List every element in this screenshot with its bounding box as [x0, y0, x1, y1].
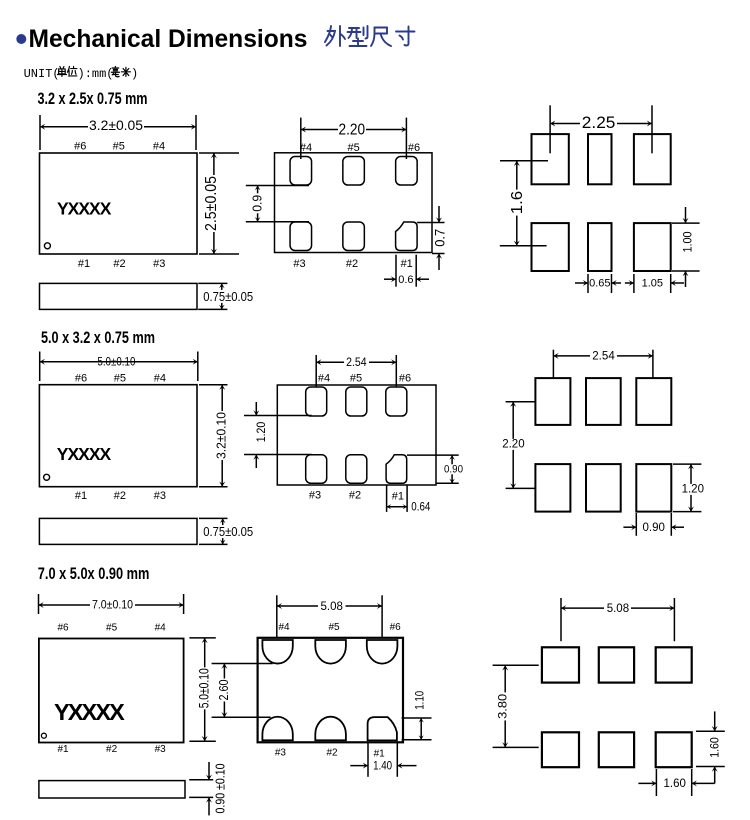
- svg-text:0.9: 0.9: [250, 195, 264, 212]
- svg-text:#4: #4: [318, 373, 330, 385]
- svg-text:1.6: 1.6: [509, 191, 526, 214]
- svg-text:0.64: 0.64: [411, 500, 430, 514]
- svg-text:#3: #3: [275, 748, 287, 759]
- svg-text:UNIT(: UNIT(: [24, 67, 60, 81]
- svg-text:#1: #1: [392, 490, 404, 502]
- svg-text:1.60: 1.60: [664, 778, 686, 790]
- svg-text:5.08: 5.08: [321, 601, 343, 613]
- svg-text:0.6: 0.6: [398, 274, 413, 286]
- svg-text:#6: #6: [408, 142, 420, 154]
- svg-text:): ): [131, 67, 138, 81]
- svg-text:0.90: 0.90: [444, 463, 463, 475]
- svg-text:1.20: 1.20: [682, 483, 704, 495]
- svg-text:1.05: 1.05: [642, 277, 663, 289]
- svg-text:#6: #6: [74, 141, 86, 153]
- svg-text:7.0±0.10: 7.0±0.10: [92, 598, 133, 612]
- svg-text:#4: #4: [154, 373, 166, 385]
- svg-text:5.08: 5.08: [607, 603, 629, 615]
- svg-text:1.20: 1.20: [256, 422, 268, 443]
- svg-text:#4: #4: [300, 142, 312, 154]
- svg-text:2.25: 2.25: [582, 113, 616, 132]
- svg-text:0.90 ±0.10: 0.90 ±0.10: [212, 764, 227, 814]
- svg-text:0.75±0.05: 0.75±0.05: [203, 524, 253, 539]
- svg-text:0.75±0.05: 0.75±0.05: [203, 289, 253, 304]
- svg-text:#4: #4: [155, 623, 167, 634]
- svg-text:0.7: 0.7: [433, 229, 448, 247]
- svg-text:#5: #5: [106, 623, 118, 634]
- svg-text:#6: #6: [75, 373, 87, 385]
- svg-text:#5: #5: [328, 622, 340, 633]
- svg-text:5.0 x 3.2 x 0.75 mm: 5.0 x 3.2 x 0.75 mm: [41, 329, 155, 347]
- svg-text:3.2±0.10: 3.2±0.10: [214, 412, 229, 459]
- svg-text:#1: #1: [78, 258, 90, 270]
- svg-text:YXXXX: YXXXX: [57, 198, 112, 218]
- svg-text:2.54: 2.54: [592, 351, 615, 363]
- svg-text:1.60: 1.60: [708, 737, 722, 758]
- svg-text:#6: #6: [399, 373, 411, 385]
- svg-text:2.60: 2.60: [216, 680, 231, 701]
- svg-text:3.2±0.05: 3.2±0.05: [89, 118, 143, 133]
- svg-text:2.5±0.05: 2.5±0.05: [203, 176, 220, 231]
- svg-text:0.90: 0.90: [643, 522, 665, 534]
- svg-text:#5: #5: [114, 373, 126, 385]
- svg-text:#1: #1: [57, 744, 69, 755]
- svg-text:#1: #1: [75, 490, 87, 502]
- svg-text:#3: #3: [154, 490, 166, 502]
- svg-text:#2: #2: [346, 258, 358, 270]
- svg-text:#3: #3: [155, 744, 167, 755]
- svg-text:YXXXX: YXXXX: [57, 444, 112, 464]
- svg-text:1.40: 1.40: [373, 759, 392, 773]
- svg-text:#6: #6: [57, 623, 69, 634]
- svg-text:#1: #1: [401, 258, 413, 270]
- svg-text:#5: #5: [347, 142, 359, 154]
- svg-text:#3: #3: [309, 489, 321, 501]
- svg-text:1.10: 1.10: [414, 691, 426, 710]
- svg-text:#4: #4: [278, 622, 290, 633]
- svg-text:1.00: 1.00: [681, 231, 695, 252]
- svg-text:YXXXX: YXXXX: [54, 699, 125, 725]
- svg-text:#5: #5: [350, 373, 362, 385]
- svg-text:Mechanical Dimensions: Mechanical Dimensions: [29, 25, 308, 53]
- svg-text:3.2 x 2.5x 0.75 mm: 3.2 x 2.5x 0.75 mm: [38, 90, 148, 108]
- svg-text:2.54: 2.54: [346, 357, 367, 369]
- svg-text:):mm(: ):mm(: [78, 67, 114, 81]
- svg-text:2.20: 2.20: [502, 438, 524, 450]
- svg-text:#2: #2: [326, 748, 338, 759]
- svg-text:#3: #3: [293, 258, 305, 270]
- svg-text:#6: #6: [390, 622, 402, 633]
- svg-text:#3: #3: [153, 258, 165, 270]
- svg-text:#2: #2: [114, 490, 126, 502]
- svg-text:0.65: 0.65: [589, 277, 610, 289]
- svg-text:#4: #4: [153, 141, 165, 153]
- svg-text:7.0 x 5.0x 0.90 mm: 7.0 x 5.0x 0.90 mm: [38, 565, 150, 583]
- svg-text:5.0±0.10: 5.0±0.10: [97, 354, 135, 368]
- svg-text:#5: #5: [113, 141, 125, 153]
- svg-text:2.20: 2.20: [339, 122, 366, 139]
- svg-text:3.80: 3.80: [496, 694, 510, 719]
- svg-text:#2: #2: [349, 489, 361, 501]
- svg-text:#2: #2: [106, 744, 118, 755]
- svg-text:5.0±0.10: 5.0±0.10: [196, 668, 211, 708]
- svg-text:#2: #2: [113, 258, 125, 270]
